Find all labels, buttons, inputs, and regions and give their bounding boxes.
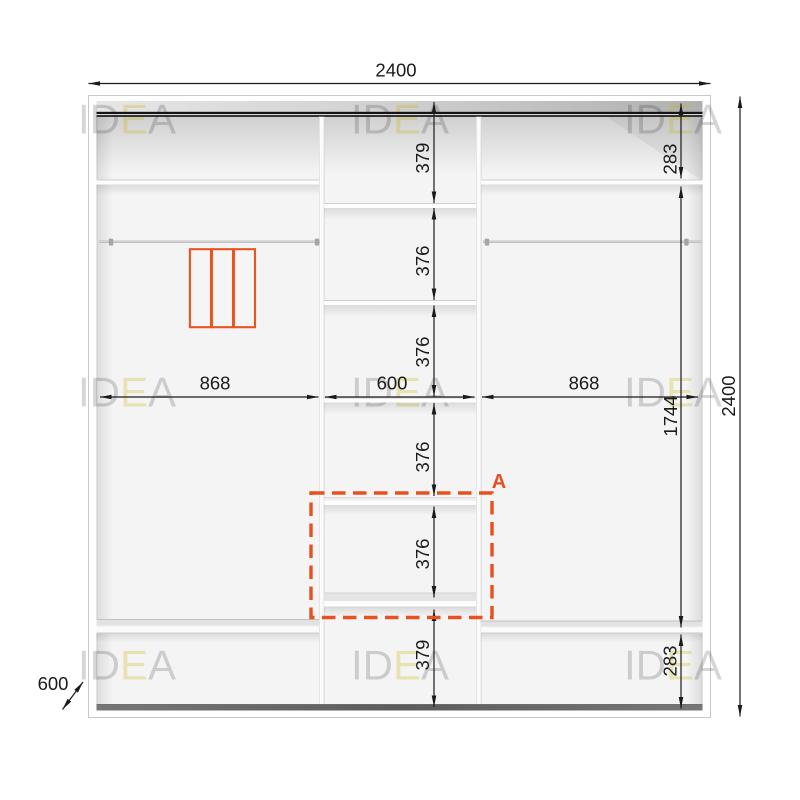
svg-text:376: 376: [412, 442, 433, 473]
svg-text:600: 600: [377, 373, 408, 394]
svg-text:376: 376: [412, 337, 433, 368]
svg-text:A: A: [492, 471, 506, 493]
svg-text:376: 376: [412, 246, 433, 277]
svg-text:868: 868: [569, 373, 600, 394]
svg-text:2400: 2400: [375, 60, 416, 81]
svg-text:379: 379: [412, 143, 433, 174]
svg-text:379: 379: [412, 640, 433, 671]
svg-text:IDEA: IDEA: [624, 96, 722, 143]
svg-text:283: 283: [660, 144, 681, 175]
svg-text:2400: 2400: [718, 375, 739, 416]
svg-text:1744: 1744: [660, 395, 681, 436]
svg-text:376: 376: [412, 539, 433, 570]
svg-text:868: 868: [200, 373, 231, 394]
svg-text:IDEA: IDEA: [78, 642, 176, 689]
svg-text:IDEA: IDEA: [78, 369, 176, 416]
svg-text:600: 600: [38, 673, 69, 694]
svg-text:283: 283: [660, 646, 681, 677]
svg-text:IDEA: IDEA: [78, 96, 176, 143]
